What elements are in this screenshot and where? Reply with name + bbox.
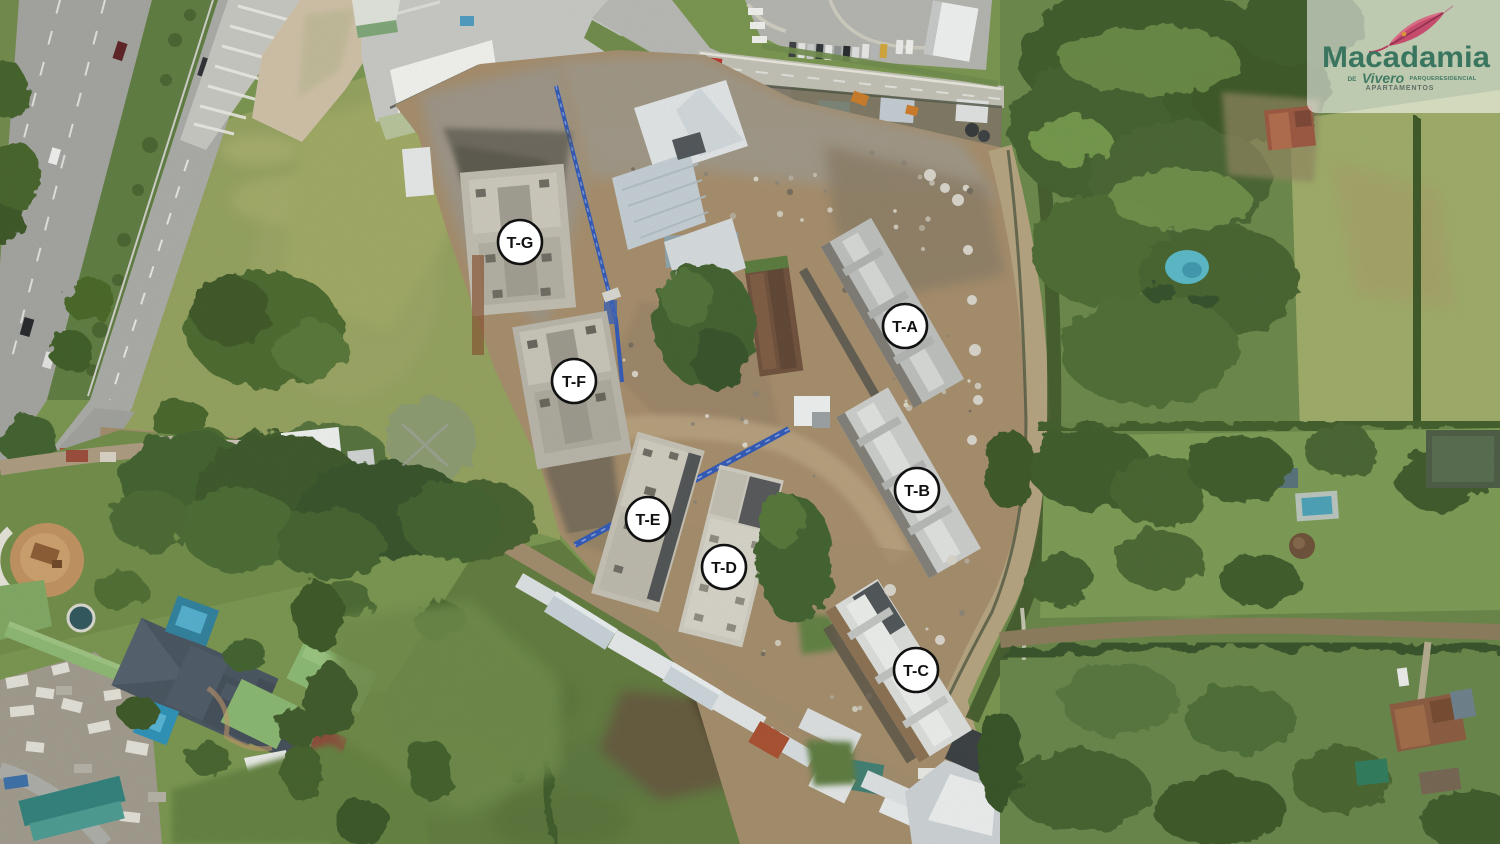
svg-text:T-D: T-D — [711, 560, 737, 577]
svg-text:T-C: T-C — [903, 663, 929, 680]
svg-text:T-B: T-B — [904, 483, 930, 500]
svg-text:Macadamia: Macadamia — [1322, 41, 1490, 74]
svg-text:T-A: T-A — [892, 319, 918, 336]
svg-text:DE: DE — [1347, 76, 1357, 83]
svg-text:Vivero: Vivero — [1362, 70, 1405, 86]
svg-text:T-F: T-F — [562, 374, 586, 391]
svg-text:T-E: T-E — [636, 512, 661, 529]
svg-text:PARQUERESIDENCIAL: PARQUERESIDENCIAL — [1409, 76, 1476, 82]
svg-text:T-G: T-G — [507, 235, 534, 252]
svg-text:APARTAMENTOS: APARTAMENTOS — [1366, 85, 1435, 92]
